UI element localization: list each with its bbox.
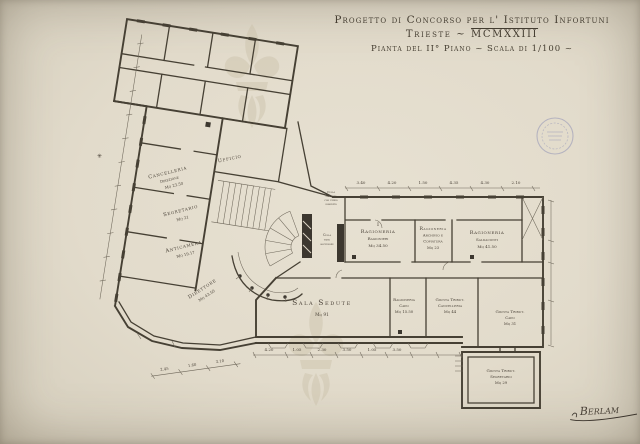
ufficio-name: Ufficio	[217, 154, 242, 165]
room-label-sala-sedute: Sala Sedute Mq 91	[292, 298, 352, 318]
giunta-cancelleria-area: Mq 44	[444, 309, 457, 314]
dim-top-0: 3.40	[357, 180, 366, 185]
rag-saldaconti-name: Ragioneria	[470, 230, 505, 236]
sala-sedute-name: Sala Sedute	[292, 298, 352, 307]
rag-archivio-name: Ragioneria	[419, 226, 446, 232]
dim-bl-1: 1.60	[188, 362, 198, 368]
room-label-anticamera: Anticamera Mq 19.17	[164, 240, 204, 262]
rag-capo-area: Mq 15.50	[395, 309, 414, 314]
dim-bottom-0: 4.20	[265, 347, 274, 352]
dimension-chain-right	[548, 200, 554, 347]
right-wing-walls	[256, 197, 543, 348]
room-label-giunta-segretario: Giunta Tribut. Segretario Mq 29	[486, 368, 515, 385]
rag-saldaconti-area: Mq 41.50	[477, 244, 497, 249]
dim-bl-0: 2.45	[160, 366, 170, 372]
dim-bottom-1: 1.05	[293, 347, 302, 352]
scanned-drawing-sheet: Progetto di Concorso per l' Istituto Inf…	[0, 0, 640, 444]
room-label-ufficio: Ufficio	[217, 154, 242, 165]
rag-ragionieri-sub: Ragionieri	[368, 236, 389, 241]
rag-capo-sub: Capo	[399, 303, 409, 308]
room-label-segretario: Segretario Mq 21	[163, 204, 201, 225]
dimension-chain-top: 3.40 4.20 1.50 4.35 4.30 2.10	[345, 180, 540, 191]
dim-bl-2: 3.10	[215, 358, 225, 364]
central-staircase	[265, 211, 299, 266]
note-label-cella-soffitto: Cella soffitto con ferro smaltato	[324, 190, 338, 206]
rag-ragionieri-num: I	[377, 222, 379, 228]
rag-ragionieri-name: Ragioneria	[361, 229, 396, 235]
dim-bottom-5: 3.50	[393, 347, 402, 352]
dim-bottom-4: 1.05	[368, 347, 377, 352]
rag-ragionieri-area: Mq 34.50	[368, 243, 388, 248]
room-label-giunta-capo: Giunta Tribut. Capo Mq 31	[495, 309, 524, 326]
rag-archivio-area: Mq 23	[427, 246, 440, 250]
architect-signature: Berlam	[569, 402, 637, 421]
ink-stamp	[537, 118, 573, 154]
room-label-rag-saldaconti: Ragioneria Saldaconti Mq 41.50	[470, 230, 505, 249]
bottom-left-facade	[115, 302, 256, 350]
stair-treads	[211, 180, 275, 231]
note-label-cella-ascensore: Cella vano ascensore	[319, 233, 334, 246]
giunta-capo-area: Mq 31	[504, 321, 516, 326]
dim-top-5: 2.10	[512, 180, 521, 185]
dim-bottom-2: 2.30	[318, 347, 327, 352]
room-label-rag-capo: Ragioneria Capo Mq 15.50	[393, 297, 416, 314]
giunta-cancelleria-name: Giunta Tribut.	[435, 297, 464, 302]
rag-capo-name: Ragioneria	[393, 297, 416, 302]
dim-top-1: 4.20	[388, 180, 397, 185]
room-label-direttore: Direttore Mq 43.50	[187, 278, 221, 307]
giunta-segretario-sub: Segretario	[490, 374, 512, 379]
stove-mark	[205, 122, 211, 128]
giunta-capo-sub: Capo	[505, 315, 515, 320]
giunta-segretario-name: Giunta Tribut.	[486, 368, 515, 373]
floor-plan-drawing: 3.40 4.20 1.50 4.35 4.30 2.10 4.20 1.05 …	[0, 0, 640, 444]
segretario-area: Mq 21	[176, 214, 189, 222]
room-label-rag-archivio: Ragioneria Archivio e Copiatura Mq 23	[419, 226, 446, 250]
cella-asc-l2: vano	[323, 238, 331, 242]
rag-saldaconti-sub: Saldaconti	[476, 237, 499, 242]
room-label-giunta-cancelleria: Giunta Tribut. Cancelleria Mq 44	[435, 297, 464, 314]
giunta-capo-name: Giunta Tribut.	[495, 309, 524, 314]
cella-asc-l1: Cella	[323, 233, 332, 237]
giunta-segretario-area: Mq 29	[495, 380, 508, 385]
sala-sedute-area: Mq 91	[315, 313, 329, 318]
signature-text: Berlam	[578, 403, 620, 418]
dim-top-3: 4.35	[450, 180, 459, 185]
giunta-cancelleria-sub: Cancelleria	[438, 303, 463, 308]
cella-note-l4: smaltato	[325, 202, 337, 206]
room-label-cancelleria: Cancelleria Direzione Mq 23.50	[148, 165, 191, 193]
rag-archivio-sub2: Copiatura	[423, 240, 443, 244]
dimension-chain-bottom-left: 2.45 1.60 3.10	[150, 356, 241, 379]
room-label-rag-ragionieri: I Ragioneria Ragionieri Mq 34.50	[361, 222, 396, 248]
dim-bottom-3: 3.50	[343, 347, 352, 352]
dim-top-2: 1.50	[419, 180, 428, 185]
reference-asterisk: ✳	[97, 153, 102, 160]
dim-top-4: 4.30	[481, 180, 490, 185]
cella-asc-l3: ascensore	[319, 242, 334, 246]
dimension-chain-bottom: 4.20 1.05 2.30 3.50 1.05 3.50	[253, 347, 462, 358]
rag-archivio-sub: Archivio e	[422, 234, 443, 238]
